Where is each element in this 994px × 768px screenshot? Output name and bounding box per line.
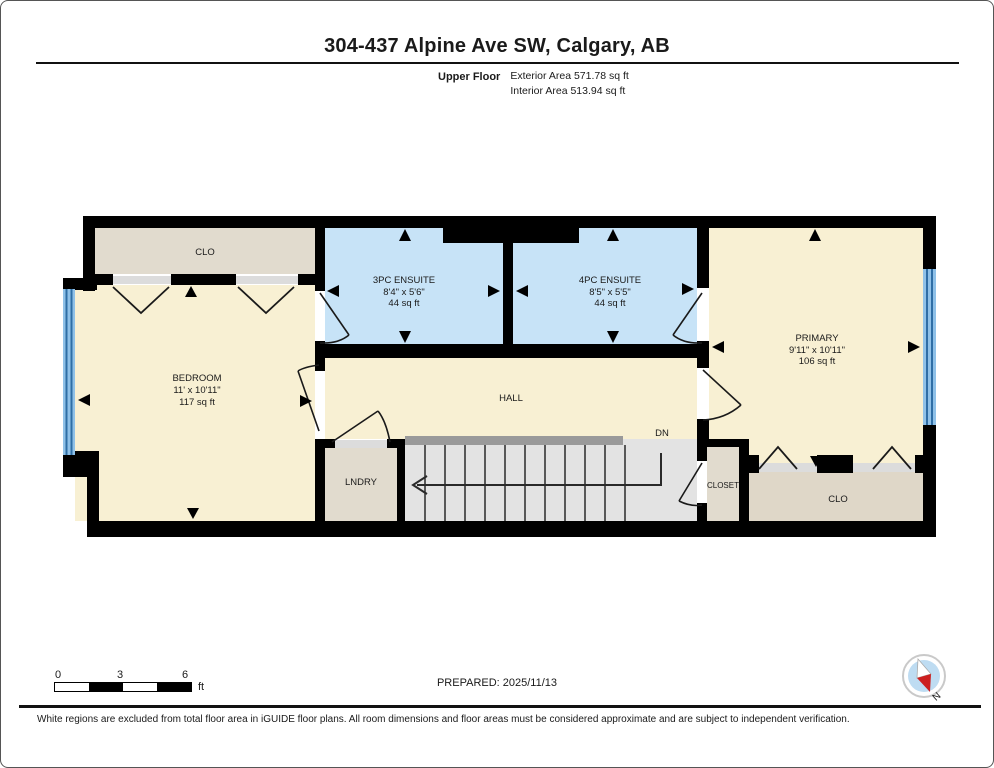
- disclaimer-text: White regions are excluded from total fl…: [37, 714, 967, 725]
- label-ensuite-3pc-name: 3PC ENSUITE: [373, 275, 435, 286]
- label-bedroom-name: BEDROOM: [172, 373, 221, 384]
- stairs: [405, 436, 697, 521]
- compass-north-label: N: [931, 690, 944, 703]
- label-primary-dims: 9'11" x 10'11": [789, 345, 845, 356]
- floor-plan: CLO BEDROOM 11' x 10'11" 117 sq ft 3PC E…: [1, 1, 994, 768]
- prepared-date: PREPARED: 2025/11/13: [1, 677, 993, 689]
- label-ensuite-4pc-name: 4PC ENSUITE: [579, 275, 641, 286]
- bedroom-window: [63, 289, 75, 455]
- label-bedroom-dims: 11' x 10'11": [173, 385, 220, 396]
- footer-divider: [19, 705, 981, 708]
- label-ensuite-4pc-dims: 8'5" x 5'5": [589, 287, 631, 298]
- primary-window: [923, 269, 936, 425]
- label-primary-name: PRIMARY: [795, 333, 839, 344]
- label-ensuite-4pc-area: 44 sq ft: [594, 298, 626, 309]
- label-closet: CLOSET: [707, 481, 739, 490]
- room-ensuite-4pc: [513, 228, 697, 344]
- label-bedroom-area: 117 sq ft: [179, 397, 215, 408]
- stairs-floor: [405, 439, 697, 521]
- floorplan-page: 304-437 Alpine Ave SW, Calgary, AB Upper…: [0, 0, 994, 768]
- stairs-rail: [405, 436, 623, 445]
- label-primary-area: 106 sq ft: [799, 356, 836, 367]
- compass-icon: N: [896, 648, 956, 708]
- label-laundry: LNDRY: [345, 477, 378, 488]
- label-clo-bottom: CLO: [828, 494, 848, 505]
- label-stairs-dn: DN: [655, 428, 669, 439]
- label-ensuite-3pc-area: 44 sq ft: [388, 298, 420, 309]
- label-clo-top: CLO: [195, 247, 215, 258]
- label-hall: HALL: [499, 393, 523, 404]
- label-ensuite-3pc-dims: 8'4" x 5'6": [383, 287, 425, 298]
- room-ensuite-3pc: [325, 228, 503, 344]
